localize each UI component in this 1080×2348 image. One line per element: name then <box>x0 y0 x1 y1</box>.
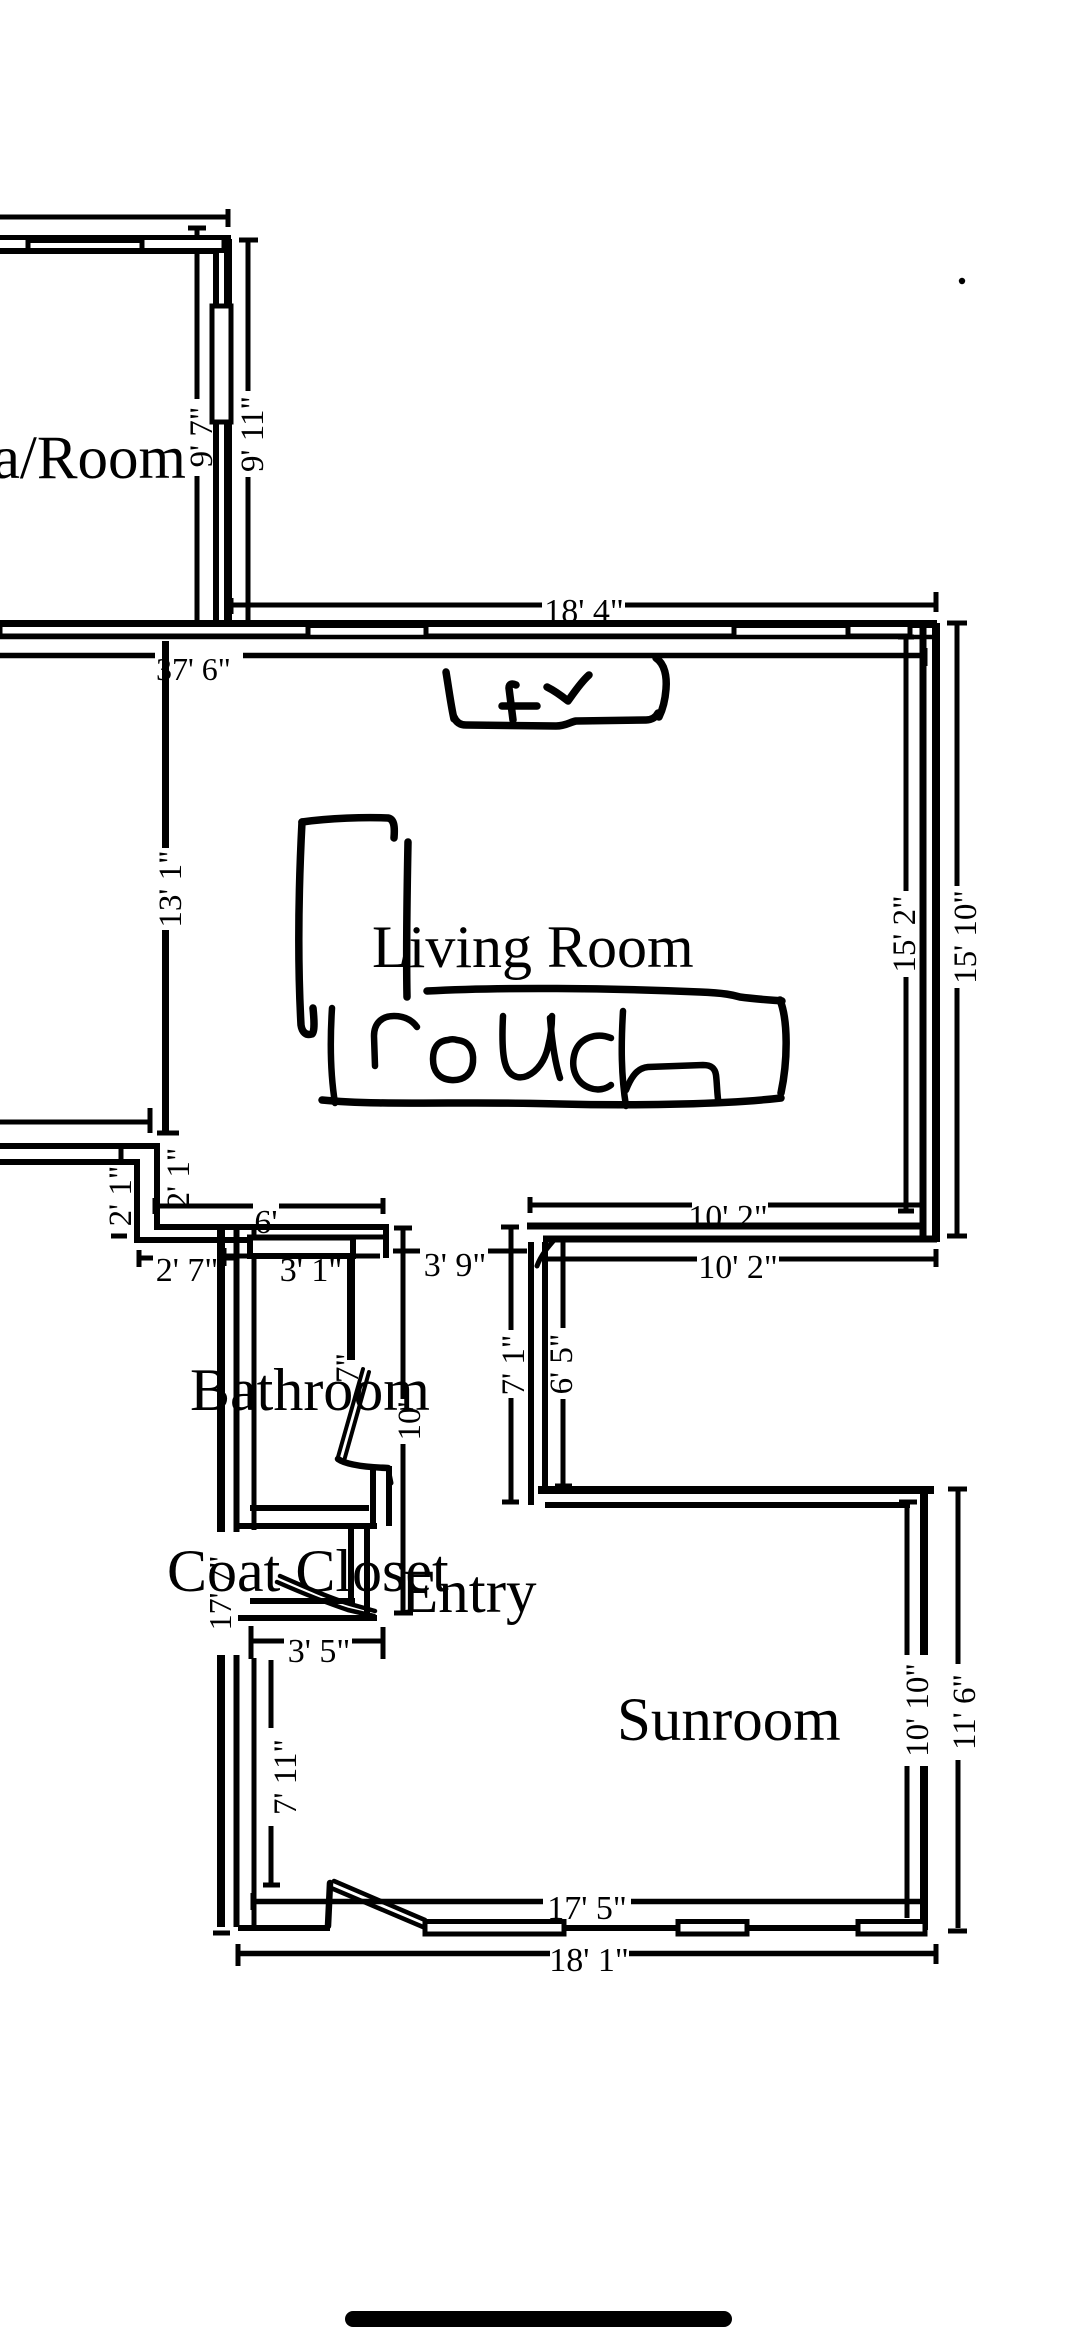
svg-text:15' 2": 15' 2" <box>887 895 923 972</box>
svg-text:6' 5": 6' 5" <box>544 1334 580 1395</box>
svg-text:Entry: Entry <box>401 1559 537 1626</box>
svg-text:Bathroom: Bathroom <box>190 1357 430 1423</box>
svg-text:6': 6' <box>254 1204 277 1241</box>
svg-text:9' 11": 9' 11" <box>235 396 271 472</box>
svg-text:37' 6": 37' 6" <box>156 651 231 687</box>
svg-text:7' 1": 7' 1" <box>496 1335 532 1396</box>
svg-text:3' 9": 3' 9" <box>424 1247 487 1284</box>
svg-text:2' 1": 2' 1" <box>103 1166 139 1227</box>
svg-text:18' 1": 18' 1" <box>549 1942 629 1979</box>
svg-text:15' 10": 15' 10" <box>948 890 984 984</box>
svg-text:2' 1": 2' 1" <box>161 1148 197 1209</box>
svg-text:10' 2": 10' 2" <box>688 1199 768 1236</box>
svg-text:18' 4": 18' 4" <box>544 593 624 630</box>
svg-text:2' 7": 2' 7" <box>156 1252 219 1289</box>
svg-text:Sunroom: Sunroom <box>617 1687 841 1754</box>
svg-text:13' 1": 13' 1" <box>153 850 189 927</box>
svg-text:17' 5": 17' 5" <box>547 1890 627 1927</box>
svg-text:a/Room: a/Room <box>0 425 186 492</box>
svg-text:3' 5": 3' 5" <box>288 1633 351 1670</box>
svg-text:11' 6": 11' 6" <box>947 1674 983 1750</box>
svg-text:7' 11": 7' 11" <box>268 1739 304 1815</box>
svg-text:3' 1": 3' 1" <box>280 1252 343 1289</box>
svg-text:Living Room: Living Room <box>372 914 694 980</box>
svg-text:10' 2": 10' 2" <box>698 1249 778 1286</box>
svg-text:9' 7": 9' 7" <box>184 407 220 468</box>
svg-text:10' 10": 10' 10" <box>900 1663 936 1757</box>
